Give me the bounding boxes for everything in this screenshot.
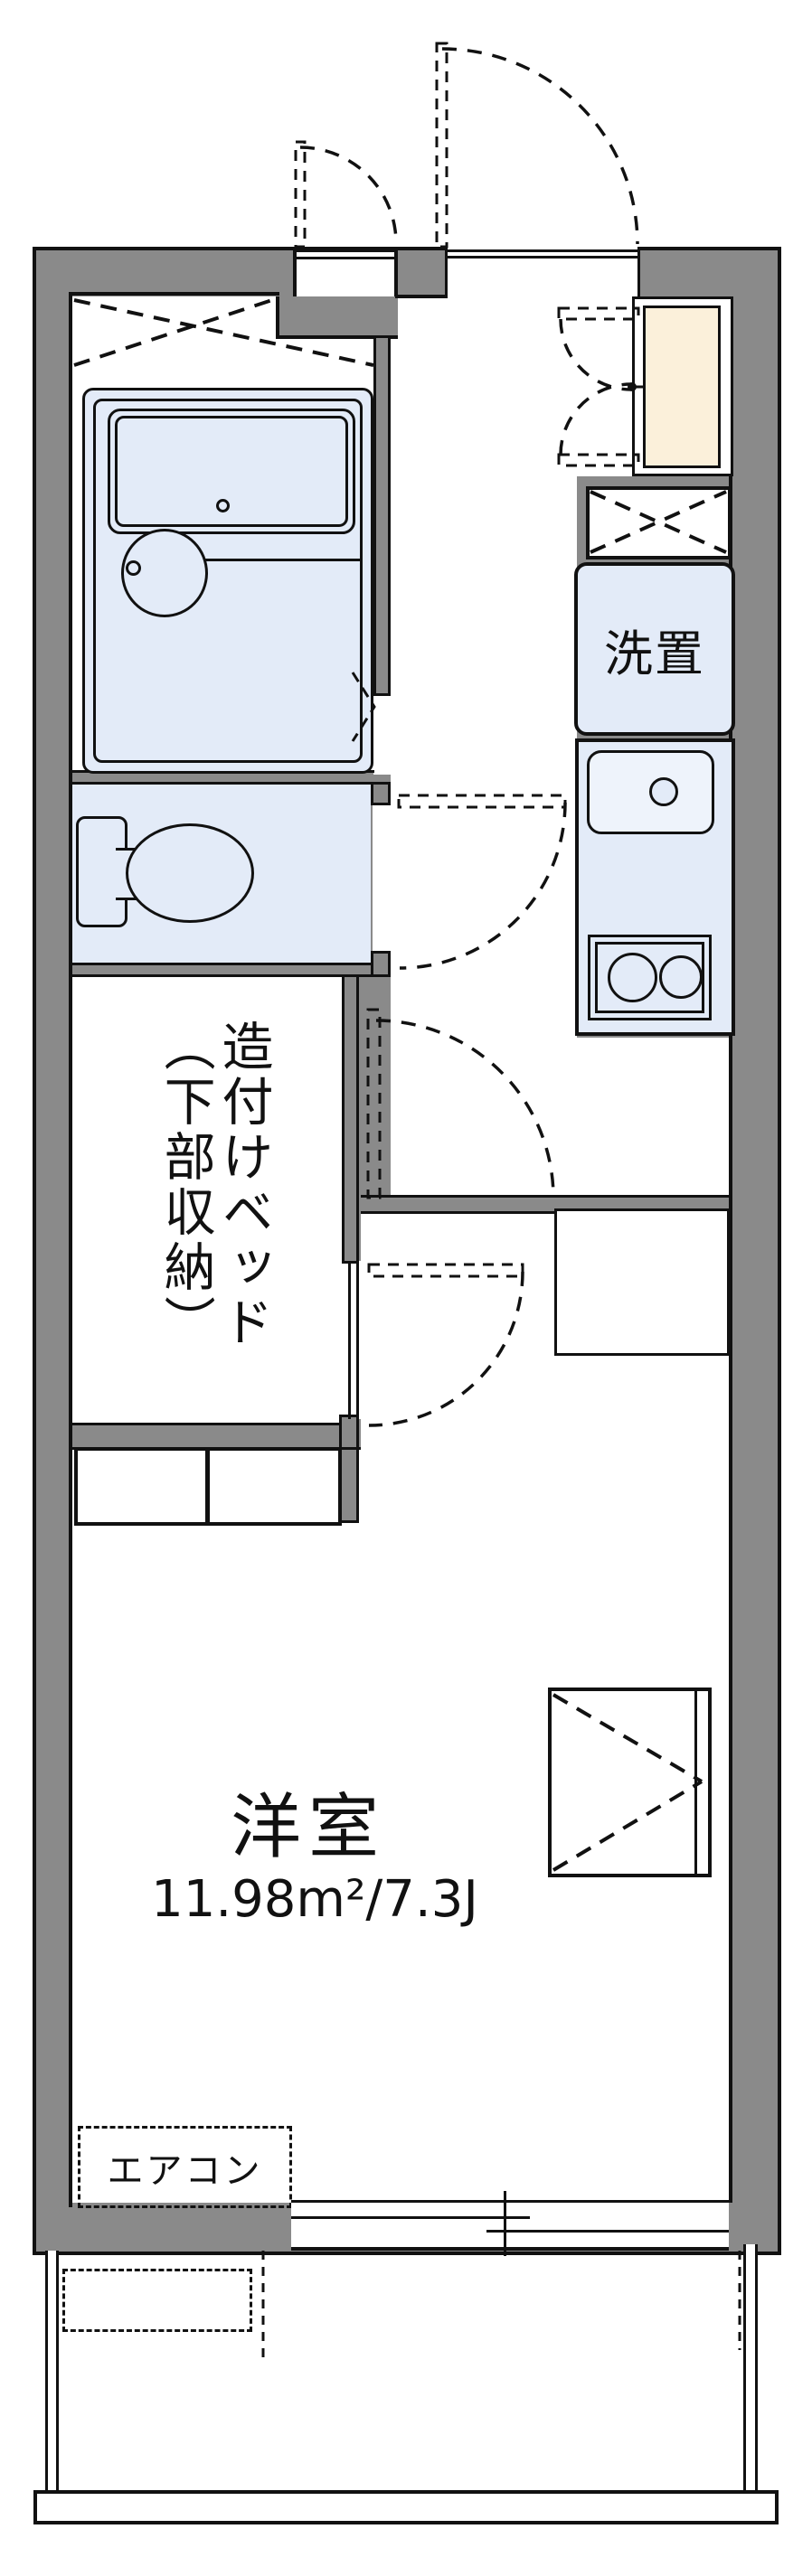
bed-storage-line1: 造付けベッド xyxy=(213,1020,271,1381)
closed-door-line xyxy=(356,1261,359,1419)
refrigerator-space xyxy=(554,1208,730,1356)
entrance-floor xyxy=(575,298,632,476)
alcove-line xyxy=(295,257,396,259)
window-sash-line xyxy=(291,2216,530,2219)
wall-line xyxy=(71,974,373,977)
shoe-cabinet-face xyxy=(643,306,721,468)
wall-line xyxy=(395,295,448,298)
opening-line xyxy=(361,1195,547,1198)
kitchen-passage xyxy=(577,1038,731,1195)
burner-left xyxy=(608,953,657,1002)
balcony-left-edge xyxy=(45,2251,59,2493)
threshold-line xyxy=(448,256,637,259)
window-sash-line xyxy=(486,2230,729,2233)
threshold-line xyxy=(448,249,637,252)
entrance-opening xyxy=(445,247,640,298)
opening-line xyxy=(361,1211,547,1214)
cabinet-right xyxy=(206,1447,342,1526)
air-conditioner: エアコン xyxy=(78,2126,292,2208)
bathtub xyxy=(108,409,355,534)
stove xyxy=(588,935,712,1020)
washbasin-faucet-icon xyxy=(126,560,141,576)
pipe-space xyxy=(586,486,732,559)
closed-door-line xyxy=(348,1261,351,1419)
wall-line xyxy=(69,292,279,296)
counter-line xyxy=(205,559,363,561)
bath-door-opening xyxy=(373,696,391,775)
bed-storage-line2: （下部収納） xyxy=(156,1020,213,1381)
hallway xyxy=(391,298,577,1198)
floor-plan: 洗置 造付けベッド （下部収納） 洋室 11.98m²/7.3J エ xyxy=(0,0,812,2576)
outdoor-unit xyxy=(62,2269,252,2332)
side-window-box xyxy=(548,1688,712,1877)
air-conditioner-label: エアコン xyxy=(108,2141,263,2194)
bed-storage-text: 造付けベッド （下部収納） xyxy=(136,1020,271,1381)
main-room-area-label: 11.98m²/7.3J xyxy=(134,1871,496,1927)
porch-door-leaf xyxy=(296,142,305,247)
porch-door-arc xyxy=(300,147,396,243)
toilet-door-opening xyxy=(373,803,391,954)
shoe-cabinet-line xyxy=(718,306,721,468)
wall-line xyxy=(69,295,72,2207)
toilet-wall-cap-bottom xyxy=(371,951,391,977)
wall-line xyxy=(71,782,374,785)
main-room-label: 洋室 xyxy=(218,1782,399,1860)
faucet-icon xyxy=(649,777,678,806)
wall-line xyxy=(71,1423,342,1425)
drain-icon xyxy=(216,499,230,512)
balcony-railing xyxy=(33,2490,779,2524)
entrance-door-leaf xyxy=(437,43,447,247)
window-sash-tick xyxy=(504,2191,506,2256)
washing-machine-space: 洗置 xyxy=(574,562,735,736)
wall-line xyxy=(71,963,373,965)
burner-right xyxy=(659,955,703,999)
bathroom-right-wall xyxy=(373,335,391,696)
entrance-door-arc xyxy=(442,49,637,244)
washing-machine-label: 洗置 xyxy=(604,614,705,685)
bed-room-right-wall xyxy=(342,974,359,1264)
cabinet-left xyxy=(74,1447,209,1526)
balcony-right-edge xyxy=(743,2244,758,2493)
unit-bath xyxy=(82,388,373,774)
wall-under-alcove xyxy=(276,296,398,339)
bathtub-inner xyxy=(115,416,348,527)
sliding-window xyxy=(291,2200,729,2251)
toilet-bowl xyxy=(126,823,254,923)
side-window-line xyxy=(694,1691,697,1874)
toilet-wall-cap-top xyxy=(371,782,391,805)
wall-stub-cabinet-end xyxy=(339,1415,359,1523)
